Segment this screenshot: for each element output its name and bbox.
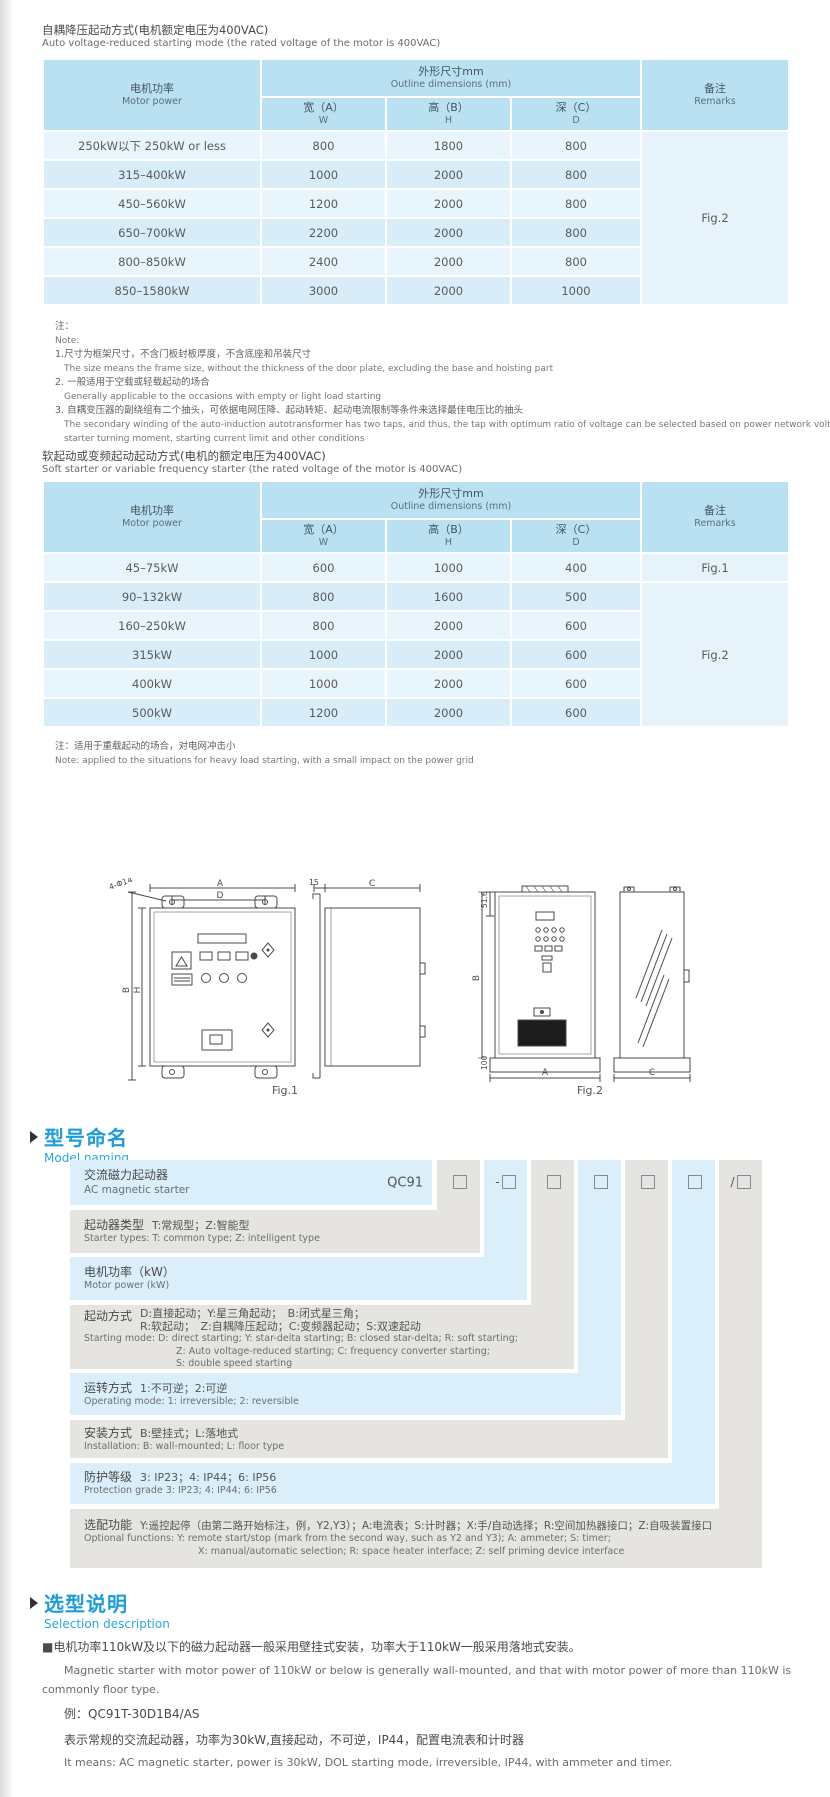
- header-height: 高（B）H: [386, 519, 511, 553]
- dim-label-holes: 4-Φ14: [108, 878, 134, 892]
- cell-h: 2000: [386, 276, 511, 305]
- note-line: Generally applicable to the occasions wi…: [55, 390, 830, 404]
- header-width: 宽（A）W: [261, 519, 386, 553]
- cell-w: 1000: [261, 160, 386, 189]
- cell-w: 3000: [261, 276, 386, 305]
- soft-dimensions-table: 电机功率 Motor power 外形尺寸mm Outline dimensio…: [42, 480, 790, 728]
- selection-title-en: Selection description: [44, 1617, 170, 1631]
- cell-power: 650–700kW: [43, 218, 261, 247]
- figures-block: A D 4-Φ14 B H 15 C 51.6 B 100 A C Fig.1 …: [40, 878, 790, 1106]
- code-box-icon: [453, 1175, 467, 1189]
- cell-power: 850–1580kW: [43, 276, 261, 305]
- auto-title-cn: 自耦降压起动方式(电机额定电压为400VAC): [42, 22, 440, 38]
- selection-paragraph-en2: commonly floor type.: [42, 1683, 802, 1696]
- auto-dimensions-table: 电机功率 Motor power 外形尺寸mm Outline dimensio…: [42, 58, 790, 306]
- cell-remark: Fig.2: [641, 582, 789, 727]
- header-width: 宽（A）W: [261, 97, 386, 131]
- cell-d: 800: [511, 160, 641, 189]
- note-line: Note:: [55, 334, 830, 348]
- fig1-label: Fig.1: [235, 1084, 335, 1097]
- code-box-icon: [688, 1175, 702, 1189]
- cell-power: 250kW以下 250kW or less: [43, 131, 261, 160]
- naming-title-cn: 型号命名: [44, 1122, 128, 1151]
- cell-h: 2000: [386, 611, 511, 640]
- dim-label-c2: C: [649, 1068, 655, 1078]
- dim-label-a: A: [217, 879, 224, 889]
- selection-head: 选型说明 Selection description: [30, 1588, 170, 1631]
- cell-h: 2000: [386, 189, 511, 218]
- cell-h: 2000: [386, 669, 511, 698]
- cell-w: 800: [261, 611, 386, 640]
- model-naming-diagram: - / 交流磁力起动器 AC magnetic starter QC91 起动器…: [70, 1160, 764, 1568]
- code-column-bar: [625, 1160, 668, 1458]
- fig2-label: Fig.2: [540, 1084, 640, 1097]
- section-auto-title: 自耦降压起动方式(电机额定电压为400VAC) Auto voltage-red…: [42, 22, 440, 49]
- naming-row-installation: 安装方式B:壁挂式；L:落地式 Installation: B: wall-mo…: [70, 1420, 668, 1458]
- code-box-icon: [547, 1175, 561, 1189]
- selection-title-cn: 选型说明: [44, 1588, 128, 1617]
- cell-h: 2000: [386, 160, 511, 189]
- dim-label-100: 100: [480, 1055, 489, 1070]
- naming-product-cell: 交流磁力起动器 AC magnetic starter QC91: [70, 1160, 432, 1205]
- cell-d: 1000: [511, 276, 641, 305]
- header-motor-power: 电机功率 Motor power: [43, 481, 261, 553]
- cell-power: 400kW: [43, 669, 261, 698]
- note-line: 注：适用于重载起动的场合，对电网冲击小: [55, 740, 474, 754]
- cell-power: 315kW: [43, 640, 261, 669]
- selection-example-cn: 表示常规的交流起动器，功率为30kW,直接起动，不可逆，IP44，配置电流表和计…: [42, 1731, 802, 1748]
- dim-label-a2: A: [542, 1068, 549, 1078]
- cell-w: 1000: [261, 640, 386, 669]
- table-row: 45–75kW 600 1000 400 Fig.1: [43, 553, 789, 582]
- cell-d: 600: [511, 669, 641, 698]
- cell-w: 1200: [261, 189, 386, 218]
- naming-row-starter-type: 起动器类型T:常规型；Z:智能型 Starter types: T: commo…: [70, 1210, 480, 1253]
- selection-example-en: It means: AC magnetic starter, power is …: [42, 1756, 802, 1769]
- cell-remark: Fig.2: [641, 131, 789, 305]
- selection-paragraph-cn: ■电机功率110kW及以下的磁力起动器一般采用壁挂式安装，功率大于110kW一般…: [42, 1638, 802, 1655]
- naming-row-optional-functions: 选配功能Y:遥控起停（由第二路开始标注，例，Y2,Y3）；A:电流表；S:计时器…: [70, 1509, 762, 1568]
- cell-d: 600: [511, 698, 641, 727]
- note-line: 3. 自耦变压器的副绕组有二个抽头，可依据电网压降、起动转矩、起动电流限制等条件…: [55, 404, 830, 418]
- code-box-icon: [641, 1175, 655, 1189]
- code-box-icon: [594, 1175, 608, 1189]
- soft-title-cn: 软起动或变频起动起动方式(电机的额定电压为400VAC): [42, 448, 462, 464]
- selection-example-model: 例：QC91T-30D1B4/AS: [42, 1705, 802, 1722]
- code-column-bar: [672, 1160, 715, 1504]
- note-line: 2. 一般适用于空载或轻载起动的场合: [55, 376, 830, 390]
- section-soft-title: 软起动或变频起动起动方式(电机的额定电压为400VAC) Soft starte…: [42, 448, 462, 475]
- header-depth: 深（C）D: [511, 519, 641, 553]
- selection-paragraph-en: Magnetic starter with motor power of 110…: [42, 1664, 802, 1677]
- cell-w: 1200: [261, 698, 386, 727]
- cell-h: 1600: [386, 582, 511, 611]
- header-remarks: 备注 Remarks: [641, 481, 789, 553]
- code-box-icon: [502, 1175, 516, 1189]
- header-remarks: 备注 Remarks: [641, 59, 789, 131]
- cell-d: 800: [511, 247, 641, 276]
- notes-auto: 注： Note: 1.尺寸为框架尺寸，不含门板封板厚度，不含底座和吊装尺寸 Th…: [55, 320, 830, 446]
- catalog-page: 自耦降压起动方式(电机额定电压为400VAC) Auto voltage-red…: [0, 0, 830, 1797]
- cell-power: 90–132kW: [43, 582, 261, 611]
- dim-label-c: C: [369, 879, 375, 889]
- cell-h: 2000: [386, 247, 511, 276]
- cell-w: 600: [261, 553, 386, 582]
- note-line: starter turning moment, starting current…: [55, 432, 830, 446]
- naming-row-motor-power: 电机功率（kW） Motor power (kW): [70, 1257, 527, 1300]
- auto-title-en: Auto voltage-reduced starting mode (the …: [42, 38, 440, 49]
- selection-body: ■电机功率110kW及以下的磁力起动器一般采用壁挂式安装，功率大于110kW一般…: [42, 1638, 802, 1769]
- cabinet-drawings-image: A D 4-Φ14 B H 15 C 51.6 B 100 A C: [40, 878, 790, 1083]
- note-line: 1.尺寸为框架尺寸，不含门板封板厚度，不含底座和吊装尺寸: [55, 348, 830, 362]
- cell-d: 600: [511, 611, 641, 640]
- cell-power: 45–75kW: [43, 553, 261, 582]
- cell-h: 1000: [386, 553, 511, 582]
- dim-label-15: 15: [309, 878, 319, 887]
- cell-d: 800: [511, 189, 641, 218]
- cell-d: 800: [511, 218, 641, 247]
- code-column-bar: /: [719, 1160, 762, 1568]
- product-name-cn: 交流磁力起动器: [70, 1160, 432, 1183]
- naming-row-protection-grade: 防护等级3: IP23；4: IP44；6: IP56 Protection g…: [70, 1463, 715, 1504]
- dim-label-516: 51.6: [480, 891, 489, 908]
- dim-label-b2: B: [472, 975, 482, 981]
- cell-power: 500kW: [43, 698, 261, 727]
- cell-d: 400: [511, 553, 641, 582]
- cell-d: 800: [511, 131, 641, 160]
- soft-title-en: Soft starter or variable frequency start…: [42, 464, 462, 475]
- header-height: 高（B）H: [386, 97, 511, 131]
- dim-label-d: D: [217, 891, 224, 901]
- cell-w: 1000: [261, 669, 386, 698]
- cell-h: 2000: [386, 640, 511, 669]
- naming-row-operating-mode: 运转方式1:不可逆；2:可逆 Operating mode: 1: irreve…: [70, 1373, 621, 1415]
- header-outline-dimensions: 外形尺寸mm Outline dimensions (mm): [261, 59, 641, 97]
- note-line: The secondary winding of the auto-induct…: [55, 418, 830, 432]
- cell-h: 1800: [386, 131, 511, 160]
- cell-remark: Fig.1: [641, 553, 789, 582]
- naming-row-starting-mode: 起动方式 D:直接起动；Y:星三角起动； B:闭式星三角； R:软起动； Z:自…: [70, 1305, 574, 1369]
- code-box-icon: [737, 1175, 751, 1189]
- cell-h: 2000: [386, 218, 511, 247]
- cell-power: 800–850kW: [43, 247, 261, 276]
- note-line: The size means the frame size, without t…: [55, 362, 830, 376]
- cell-w: 800: [261, 582, 386, 611]
- table-row: 90–132kW 800 1600 500 Fig.2: [43, 582, 789, 611]
- header-motor-power: 电机功率 Motor power: [43, 59, 261, 131]
- model-naming-head: 型号命名 Model naming: [30, 1122, 129, 1165]
- section-marker-icon: [30, 1597, 38, 1609]
- dim-label-h: H: [133, 987, 143, 994]
- section-marker-icon: [30, 1131, 38, 1143]
- model-prefix: QC91: [387, 1175, 423, 1190]
- note-line: 注：: [55, 320, 830, 334]
- cell-d: 500: [511, 582, 641, 611]
- table-row: 250kW以下 250kW or less 800 1800 800 Fig.2: [43, 131, 789, 160]
- cell-w: 2200: [261, 218, 386, 247]
- cell-h: 2000: [386, 698, 511, 727]
- cell-power: 315–400kW: [43, 160, 261, 189]
- cell-power: 160–250kW: [43, 611, 261, 640]
- cell-w: 2400: [261, 247, 386, 276]
- product-name-en: AC magnetic starter: [70, 1183, 432, 1196]
- note-soft: 注：适用于重载起动的场合，对电网冲击小 Note: applied to the…: [55, 740, 474, 768]
- header-depth: 深（C）D: [511, 97, 641, 131]
- cell-d: 600: [511, 640, 641, 669]
- cell-power: 450–560kW: [43, 189, 261, 218]
- dim-label-b: B: [122, 987, 132, 993]
- header-outline-dimensions: 外形尺寸mm Outline dimensions (mm): [261, 481, 641, 519]
- cell-w: 800: [261, 131, 386, 160]
- note-line: Note: applied to the situations for heav…: [55, 754, 474, 768]
